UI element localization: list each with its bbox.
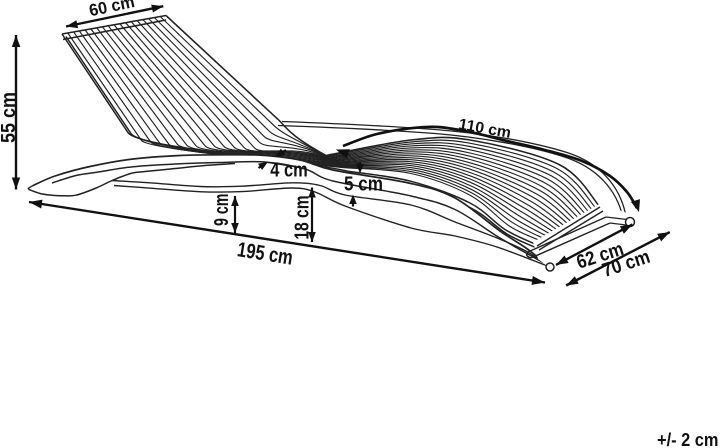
svg-text:55 cm: 55 cm — [0, 92, 20, 143]
svg-text:4 cm: 4 cm — [270, 159, 308, 182]
svg-text:9 cm: 9 cm — [211, 194, 233, 227]
svg-text:5 cm: 5 cm — [344, 174, 383, 196]
svg-text:+/- 2 cm: +/- 2 cm — [657, 430, 719, 448]
svg-text:18 cm: 18 cm — [291, 195, 313, 239]
